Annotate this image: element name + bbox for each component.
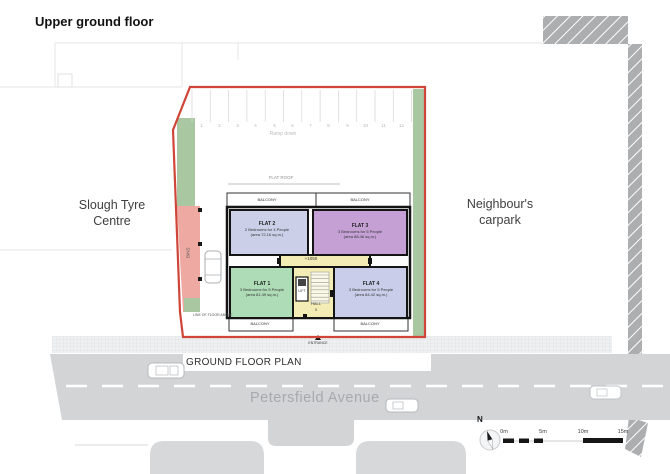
staircase xyxy=(311,272,329,303)
lift-label: LIFT xyxy=(296,289,308,293)
bay-number: 6 xyxy=(288,123,297,128)
bay-number: 9 xyxy=(343,123,352,128)
plan-caption: GROUND FLOOR PLAN xyxy=(186,357,302,369)
street-name: Petersfield Avenue xyxy=(250,390,380,407)
neighbour-buildings-top xyxy=(543,16,628,44)
bay-number: 8 xyxy=(324,123,333,128)
scale-bar xyxy=(503,438,623,443)
balcony-label: BALCONY xyxy=(350,321,390,326)
scale-tick-label: 0m xyxy=(496,429,512,435)
verge-right xyxy=(356,441,466,474)
car-road-left xyxy=(148,363,184,378)
scale-tick-label: 10m xyxy=(575,429,591,435)
line-of-floor-above-label: LINE OF FLOOR ABOVE xyxy=(193,313,232,317)
landscape-patch-left-lower xyxy=(184,298,200,312)
north-label: N xyxy=(477,415,483,425)
bay-number: 1 xyxy=(197,123,206,128)
verge-left xyxy=(150,441,264,474)
floor-plan-page: Upper ground floor Slough Tyre Centre Ne… xyxy=(0,0,670,474)
hall-level-label: 0 xyxy=(306,308,326,313)
lift-car xyxy=(298,279,306,286)
flat3-label: FLAT 3 3 Bedrooms for 5 People (area 88.… xyxy=(325,223,395,240)
flat4-label: FLAT 4 3 Bedrooms for 5 People (area 84.… xyxy=(336,281,406,298)
pavement-crosshatch xyxy=(52,336,612,353)
landscape-strip-left xyxy=(177,118,195,206)
flat1-label: FLAT 1 3 Bedrooms for 5 People (area 81.… xyxy=(227,281,297,298)
parking-bay-lines xyxy=(192,90,412,122)
car-road-right xyxy=(590,386,621,399)
entrance-label: ENTRANCE xyxy=(304,341,332,345)
bay-number: 10 xyxy=(361,123,370,128)
flat1-area-label: (area 81.49 sq.m.) xyxy=(227,292,297,297)
bay-number: 7 xyxy=(306,123,315,128)
car-on-site xyxy=(205,251,221,283)
side-road-stub xyxy=(268,418,354,446)
bins-label: BINS xyxy=(186,247,191,258)
bay-number: 12 xyxy=(397,123,406,128)
bay-number: 11 xyxy=(379,123,388,128)
balcony-label: BALCONY xyxy=(340,197,380,202)
level-label: +1050 xyxy=(283,256,339,261)
ramp-down-label: Ramp down xyxy=(263,131,303,137)
balcony-label: BALCONY xyxy=(247,197,287,202)
flat3-area-label: (area 88.46 sq.m.) xyxy=(325,234,395,239)
neighbour-buildings-corner xyxy=(625,417,648,457)
bay-number: 5 xyxy=(270,123,279,128)
scale-tick-label: 5m xyxy=(535,429,551,435)
flat2-area-label: (area 72.16 sq.m.) xyxy=(232,232,302,237)
bay-number: 4 xyxy=(251,123,260,128)
page-title: Upper ground floor xyxy=(35,14,153,30)
car-road-middle xyxy=(386,399,418,412)
balcony-label: BALCONY xyxy=(240,321,280,326)
bay-number: 2 xyxy=(215,123,224,128)
flat-roof-label: FLAT ROOF xyxy=(251,175,311,180)
flat4-area-label: (area 84.42 sq.m.) xyxy=(336,292,406,297)
label-neighbours-carpark: Neighbour's carpark xyxy=(448,196,552,229)
flat2-label: FLAT 2 2 Bedrooms for 4 People (area 72.… xyxy=(232,221,302,238)
scale-tick-label: 15m xyxy=(615,429,631,435)
bay-number: 3 xyxy=(233,123,242,128)
survey-marker xyxy=(58,74,72,87)
label-slough-tyre-centre: Slough Tyre Centre xyxy=(62,197,162,230)
